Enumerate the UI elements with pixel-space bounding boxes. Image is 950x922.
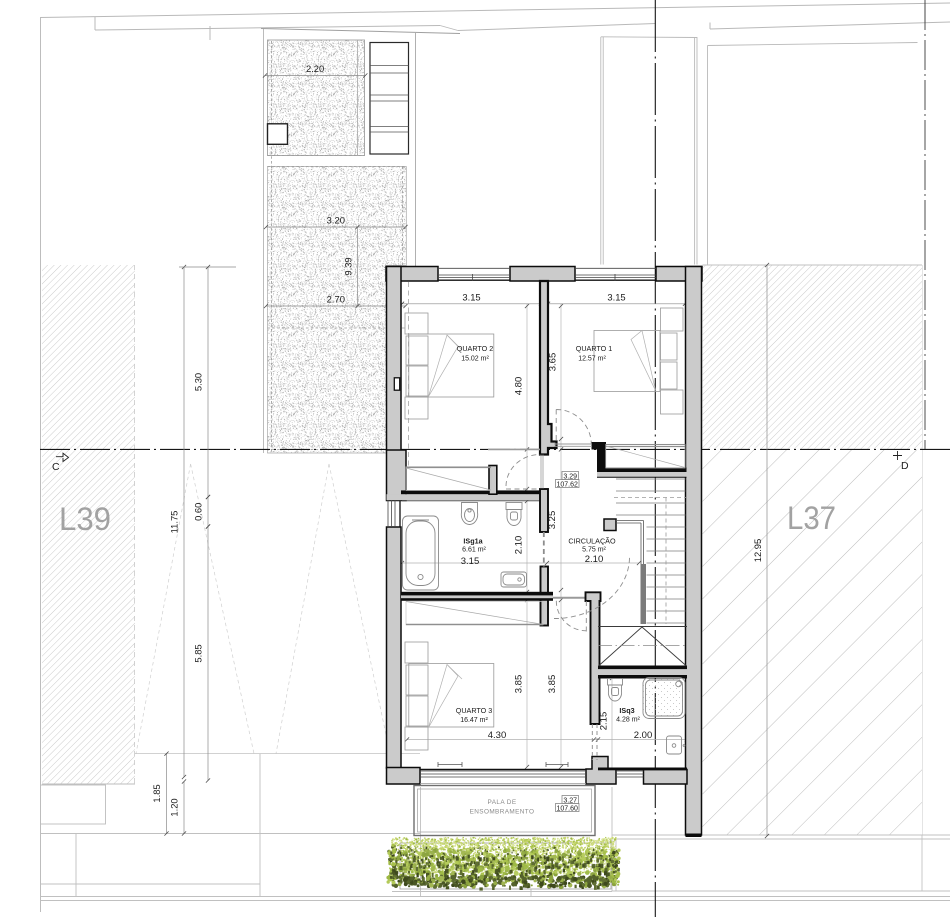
svg-text:1.85: 1.85 (151, 784, 162, 802)
svg-text:2.70: 2.70 (327, 294, 345, 305)
svg-text:107.62: 107.62 (556, 481, 578, 488)
svg-text:12.57 m²: 12.57 m² (578, 356, 606, 363)
svg-text:107.60: 107.60 (556, 805, 578, 812)
svg-text:2.10: 2.10 (514, 536, 525, 555)
svg-text:2.20: 2.20 (306, 63, 324, 74)
svg-text:3.65: 3.65 (548, 353, 559, 372)
svg-text:12.95: 12.95 (752, 539, 763, 562)
svg-text:15.02 m²: 15.02 m² (461, 356, 489, 363)
svg-text:4.80: 4.80 (514, 377, 525, 396)
svg-text:3.15: 3.15 (462, 291, 480, 302)
svg-text:ENSOMBRAMENTO: ENSOMBRAMENTO (470, 809, 535, 816)
svg-text:3.85: 3.85 (547, 675, 558, 694)
svg-text:1.20: 1.20 (169, 798, 180, 816)
svg-text:QUARTO 1: QUARTO 1 (576, 344, 612, 353)
svg-text:L37: L37 (787, 500, 836, 536)
svg-text:2.10: 2.10 (585, 554, 604, 565)
svg-text:3.15: 3.15 (461, 556, 480, 567)
svg-text:5.85: 5.85 (193, 644, 204, 662)
svg-text:6.61 m²: 6.61 m² (462, 547, 486, 554)
svg-text:ISg1a: ISg1a (463, 537, 483, 546)
svg-text:4.30: 4.30 (488, 730, 507, 741)
svg-text:2.00: 2.00 (634, 730, 653, 741)
svg-text:3.15: 3.15 (607, 291, 625, 302)
svg-text:PALA DE: PALA DE (488, 799, 517, 806)
svg-text:0.60: 0.60 (193, 503, 204, 521)
svg-text:3.29: 3.29 (563, 473, 577, 480)
svg-text:3.25: 3.25 (547, 511, 558, 530)
svg-text:L39: L39 (59, 501, 111, 537)
svg-text:QUARTO 2: QUARTO 2 (457, 344, 493, 353)
svg-text:9.39: 9.39 (343, 257, 354, 275)
svg-text:5.75 m²: 5.75 m² (582, 547, 606, 554)
svg-text:3.85: 3.85 (514, 675, 525, 694)
svg-text:C: C (52, 461, 60, 473)
svg-text:CIRCULAÇÃO: CIRCULAÇÃO (568, 537, 616, 546)
svg-text:4.28 m²: 4.28 m² (616, 717, 640, 724)
svg-text:ISq3: ISq3 (619, 706, 634, 715)
svg-text:3.27: 3.27 (563, 797, 577, 804)
svg-text:5.30: 5.30 (193, 373, 204, 391)
svg-text:2.15: 2.15 (599, 712, 610, 731)
svg-text:D: D (901, 460, 909, 472)
svg-text:16.47 m²: 16.47 m² (460, 717, 488, 724)
svg-text:11.75: 11.75 (169, 511, 180, 534)
svg-text:QUARTO 3: QUARTO 3 (456, 706, 492, 715)
svg-text:3.20: 3.20 (327, 215, 345, 226)
